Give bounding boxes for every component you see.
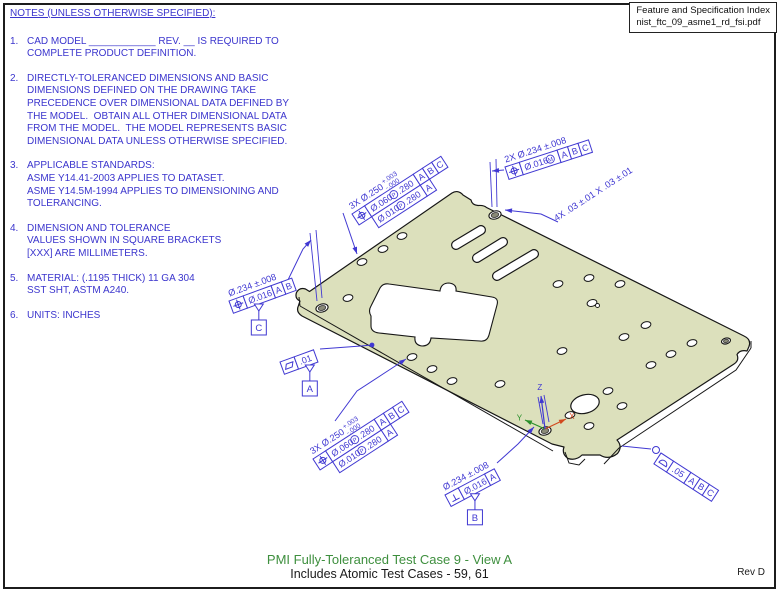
leader-datum-b-hole: [497, 427, 534, 463]
triad-z-label: Z: [537, 383, 542, 392]
triad-y-label: Y: [517, 413, 523, 422]
leader-datum-c-hole: [287, 240, 311, 282]
datum-letter: C: [255, 323, 262, 334]
callout-profile: .05ABC: [654, 453, 719, 501]
plate-outline: [296, 192, 750, 460]
callout-flatness: .01A: [280, 350, 329, 404]
view-subtitle: Includes Atomic Test Cases - 59, 61: [0, 567, 779, 581]
callout-datum-c-hole: Ø.234 ±.008Ø.016ABC: [225, 267, 307, 343]
datum-letter: B: [472, 513, 478, 524]
callout-bottom-3x-holes: 3X Ø.250+.003-.000Ø.060P.280ABCØ.010P.28…: [306, 390, 416, 480]
triad-x-label: X: [569, 412, 575, 421]
callout-datum-b-hole: Ø.234 ±.008Ø.016AB: [439, 458, 514, 534]
leader-4x-chamfer: [505, 208, 558, 222]
callout-4x-chamfer: 4X .03 ±.01 X .03 ±.01: [552, 165, 634, 223]
datum-feature-symbol: C: [251, 304, 266, 335]
datum-feature-symbol: A: [302, 365, 317, 396]
datum-feature-symbol: B: [467, 494, 482, 525]
callout-2x-holes: 2X Ø.234 ±.008Ø.016MABC: [501, 128, 592, 179]
datum-triangle-icon: [470, 494, 479, 501]
revision-label: Rev D: [737, 567, 765, 578]
dimension-text: 4X .03 ±.01 X .03 ±.01: [552, 165, 634, 223]
view-title: PMI Fully-Toleranced Test Case 9 - View …: [0, 552, 779, 567]
datum-triangle-icon: [254, 304, 263, 311]
all-around-icon: [653, 447, 660, 454]
plate: [296, 192, 751, 465]
leader-profile: [622, 446, 660, 454]
leader-2x-holes: [492, 168, 504, 173]
datum-triangle-icon: [305, 365, 314, 372]
drawing-svg: 3X Ø.250+.003-.000Ø.060P.280ABCØ.010P.28…: [0, 0, 779, 594]
datum-letter: A: [307, 384, 314, 395]
